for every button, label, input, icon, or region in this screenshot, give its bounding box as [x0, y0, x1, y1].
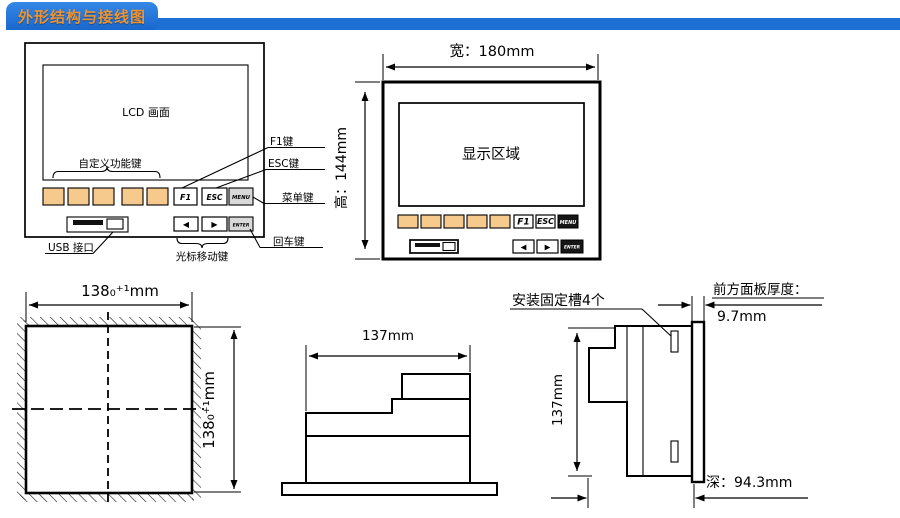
enter-key-label: ENTER [564, 245, 581, 251]
usb-connector-icon [73, 220, 103, 225]
menu-callout-label: 菜单键 [282, 191, 314, 204]
custom-function-key [147, 188, 168, 205]
hatching [20, 317, 194, 326]
cursor-keys-label: 光标移动键 [176, 250, 229, 263]
hatching [20, 493, 194, 502]
f1-key-label: F1 [517, 218, 529, 228]
panel-outline [25, 43, 264, 237]
top-width-label: 137mm [362, 328, 414, 344]
menu-key-label: MENU [232, 195, 251, 201]
esc-key-label: ESC [206, 193, 223, 202]
custom-function-key [421, 215, 441, 228]
custom-function-key [93, 188, 114, 205]
custom-function-key [68, 188, 89, 205]
front-flange [282, 483, 497, 495]
width-dimension-label: 宽：180mm [450, 43, 535, 60]
esc-key-label: ESC [537, 217, 554, 226]
panel-thickness-label: 前方面板厚度： [713, 281, 808, 298]
f1-callout-label: F1键 [270, 135, 294, 148]
enter-key-label: ENTER [233, 223, 250, 229]
custom-function-key [43, 188, 64, 205]
front-bezel [692, 322, 704, 482]
height-dimension-label: 高：144mm [333, 127, 350, 209]
custom-keys-label: 自定义功能键 [79, 157, 142, 170]
mounting-slots-label: 安装固定槽4个 [512, 293, 605, 309]
body-outline [306, 374, 470, 483]
lcd-label: LCD 画面 [122, 106, 170, 119]
dimensioned-front-view: 宽：180mm 高：144mm 显示区域 F1 ESC MEN [333, 43, 600, 259]
left-arrow-icon: ◀ [183, 220, 190, 229]
side-body-outline [589, 326, 693, 476]
custom-function-keys [43, 188, 168, 205]
structure-diagram: LCD 画面 自定义功能键 F1 ESC MENU ◀ [0, 0, 900, 518]
right-arrow-icon: ▶ [545, 243, 551, 252]
usb-callout-label: USB 接口 [48, 241, 94, 254]
left-arrow-icon: ◀ [521, 243, 527, 252]
cutout-height-label: 138₀⁺¹mm [200, 371, 218, 449]
custom-function-key [490, 215, 510, 228]
front-panel-view: LCD 画面 自定义功能键 F1 ESC MENU ◀ [25, 43, 325, 263]
depth-label: 深：94.3mm [706, 475, 792, 491]
display-area-label: 显示区域 [462, 146, 520, 163]
right-arrow-icon: ▶ [211, 220, 218, 229]
custom-function-key [467, 215, 487, 228]
side-height-label: 137mm [550, 374, 566, 426]
custom-function-key [444, 215, 464, 228]
usb-port [410, 240, 458, 253]
custom-function-key [122, 188, 143, 205]
panel-cutout-view: 138₀⁺¹mm 138₀⁺¹mm [12, 282, 241, 506]
custom-function-keys [398, 215, 510, 228]
menu-key-label: MENU [560, 220, 577, 226]
thickness-value-label: 9.7mm [717, 309, 767, 325]
custom-function-key [398, 215, 418, 228]
top-profile-view: 137mm [282, 328, 497, 495]
f1-key-label: F1 [180, 193, 191, 202]
side-profile-view: 安装固定槽4个 前方面板厚度： 9.7mm 137mm 深：94.3mm [510, 281, 824, 508]
esc-callout-label: ESC键 [268, 157, 300, 170]
cursor-keys-brace [177, 238, 228, 248]
page: 外形结构与接线图 LCD 画面 自定义功能键 [0, 0, 900, 518]
usb-connector-icon [415, 243, 440, 247]
enter-callout-label: 回车键 [273, 235, 305, 248]
hatching [17, 320, 26, 500]
cutout-width-label: 138₀⁺¹mm [81, 282, 159, 300]
